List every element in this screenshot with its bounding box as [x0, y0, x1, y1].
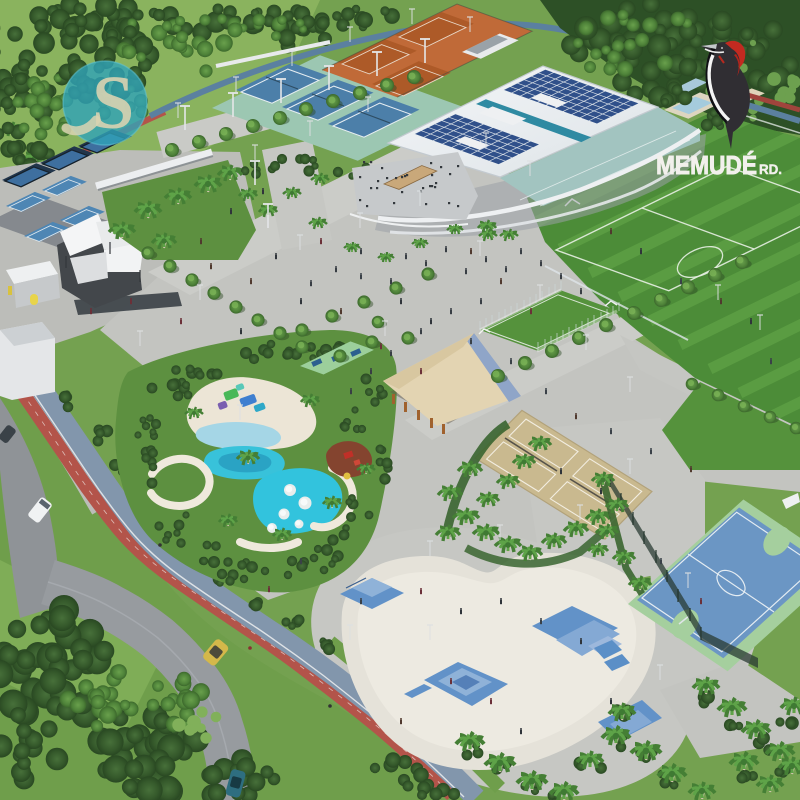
svg-text:MEMUDÉ: MEMUDÉ — [656, 150, 757, 180]
svg-text:RD.: RD. — [759, 161, 782, 177]
svg-text:S: S — [92, 61, 134, 145]
